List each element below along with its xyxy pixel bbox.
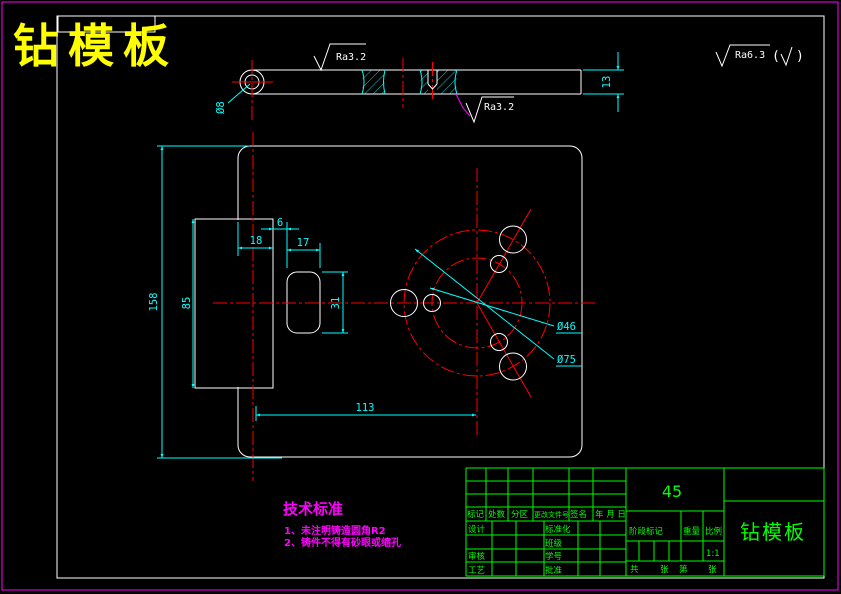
- inner-frame: [57, 16, 824, 578]
- tech-requirements: 技术标准 1、未注明铸造圆角R2 2、铸件不得有砂眼或缩孔: [283, 500, 401, 549]
- dim-85: 85: [181, 219, 193, 388]
- label-class: 班级: [545, 538, 563, 549]
- scale-value: 1:1: [706, 549, 720, 559]
- hole-callout: Ø8: [215, 84, 250, 114]
- dim-6: 6: [261, 217, 299, 268]
- general-finish-label: Ra6.3: [735, 50, 765, 61]
- dim-6-label: 6: [277, 217, 283, 229]
- label-rev-sign: 签名: [570, 509, 587, 520]
- tech-note-1: 1、未注明铸造圆角R2: [284, 524, 386, 537]
- label-rev-date: 年 月 日: [595, 509, 626, 520]
- check-symbol: [781, 47, 792, 65]
- callout-d46: Ø46: [430, 288, 582, 333]
- surface-finish-bottom-label: Ra3.2: [484, 102, 514, 113]
- label-check: 审核: [468, 551, 486, 562]
- dim-13: 13: [583, 52, 624, 112]
- paren-open: (: [772, 49, 780, 64]
- dim-31-label: 31: [330, 297, 342, 310]
- label-rev-mark: 标记: [467, 509, 485, 520]
- callout-d46-label: Ø46: [557, 321, 576, 333]
- dim-158-label: 158: [148, 293, 160, 312]
- dim-85-label: 85: [181, 297, 193, 310]
- paren-close: ): [796, 49, 804, 64]
- dimensions: 158 85 18 6 17: [148, 146, 582, 458]
- dim-18-label: 18: [250, 235, 263, 247]
- label-standard: 标准化: [545, 524, 571, 535]
- leader-line: [456, 94, 470, 116]
- label-approve: 批准: [545, 565, 563, 576]
- cad-drawing-screen: 钻模板 Ra3.2: [0, 0, 841, 594]
- part-name: 钻模板: [740, 520, 806, 544]
- surface-finish-top-label: Ra3.2: [336, 52, 366, 63]
- general-surface-finish: Ra6.3 ( ): [716, 45, 804, 66]
- dim-17: 17: [287, 237, 320, 268]
- border-frame: [2, 2, 838, 590]
- dim-13-label: 13: [601, 76, 613, 89]
- label-sheet-no: 第: [679, 564, 688, 575]
- label-design: 设计: [468, 524, 486, 535]
- dim-113: 113: [256, 402, 476, 421]
- dim-18: 18: [238, 222, 273, 256]
- label-sheet-zhang2: 张: [708, 565, 717, 575]
- dim-113-label: 113: [356, 402, 375, 414]
- dim-31: 31: [322, 272, 348, 333]
- surface-finish-bottom: Ra3.2: [456, 94, 514, 122]
- dim-158: 158: [148, 146, 282, 458]
- label-process: 工艺: [468, 566, 485, 576]
- label-rev-count: 处数: [488, 509, 506, 520]
- label-weight: 重量: [683, 526, 701, 537]
- outer-border: [2, 2, 838, 590]
- plate-outline: [238, 146, 582, 457]
- label-stage-mark: 阶段标记: [629, 526, 664, 537]
- top-view: Ra3.2 Ra3.2 Ø8 13: [215, 44, 624, 123]
- material-value: 45: [662, 482, 682, 501]
- title-block: 标记 处数 分区 更改文件号 签名 年 月 日 设计 审核 工艺 标准化 班级 …: [466, 468, 824, 576]
- surface-finish-top: Ra3.2: [314, 44, 366, 70]
- hole-label: Ø8: [215, 101, 227, 114]
- label-student-id: 学号: [545, 551, 562, 562]
- callout-d75-label: Ø75: [557, 354, 576, 366]
- tech-note-2: 2、铸件不得有砂眼或缩孔: [284, 536, 401, 549]
- front-view: [195, 132, 598, 481]
- tech-notes-title: 技术标准: [283, 500, 343, 518]
- page-title: 钻模板: [13, 19, 178, 73]
- label-rev-zone: 分区: [511, 510, 529, 520]
- drawing-canvas: 钻模板 Ra3.2: [0, 0, 841, 594]
- label-rev-doc: 更改文件号: [534, 510, 569, 519]
- section-hatch-1: [362, 70, 385, 94]
- label-sheet-zhang1: 张: [660, 565, 669, 575]
- dim-17-label: 17: [297, 237, 310, 249]
- section-hatch-2: [420, 70, 457, 94]
- label-sheet-total: 共: [630, 565, 639, 575]
- label-scale: 比例: [705, 526, 722, 537]
